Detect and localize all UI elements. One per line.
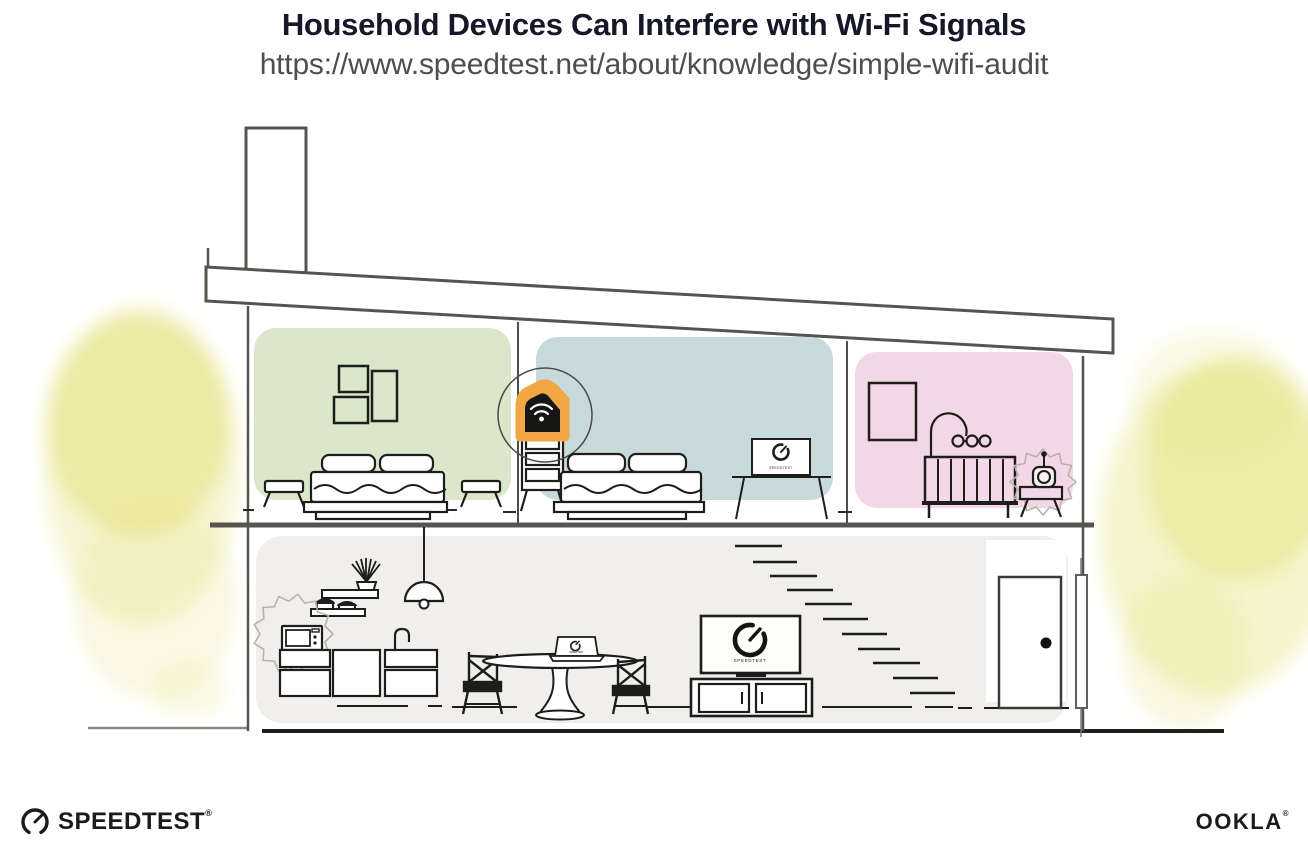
tv: SPEEDTEST <box>701 616 800 677</box>
doorknob <box>1041 638 1052 649</box>
ookla-wordmark: OOKLA <box>1196 809 1283 834</box>
speedtest-gauge-icon <box>20 807 50 837</box>
downspout <box>1076 558 1087 737</box>
foliage-right <box>1100 330 1308 728</box>
speedtest-wordmark: SPEEDTEST <box>58 808 205 835</box>
green-bedroom-bed <box>304 455 447 519</box>
ookla-logo-text: OOKLA® <box>1196 809 1290 834</box>
speedtest-reg-mark: ® <box>205 808 212 818</box>
blue-bedroom-bed <box>554 454 704 519</box>
tv-area: SPEEDTEST <box>691 616 812 716</box>
laptop-screen-label: SPEEDTEST <box>569 651 584 654</box>
infographic-page: Household Devices Can Interfere with Wi-… <box>0 0 1308 861</box>
foliage-left <box>44 305 240 716</box>
house-illustration: SPEEDTEST <box>0 0 1308 861</box>
speedtest-logo-text: SPEEDTEST® <box>58 808 212 836</box>
monitor-screen-label: SPEEDTEST <box>769 466 793 470</box>
speedtest-monitor: SPEEDTEST <box>752 439 810 478</box>
microwave <box>282 626 322 650</box>
chimney <box>246 128 306 275</box>
ookla-reg-mark: ® <box>1283 809 1290 818</box>
media-console <box>691 679 812 716</box>
front-door <box>999 577 1061 708</box>
ookla-logo: OOKLA® <box>1196 809 1290 835</box>
tv-screen-label: SPEEDTEST <box>734 658 767 663</box>
speedtest-logo: SPEEDTEST® <box>20 807 212 837</box>
laptop: SPEEDTEST <box>550 637 604 661</box>
